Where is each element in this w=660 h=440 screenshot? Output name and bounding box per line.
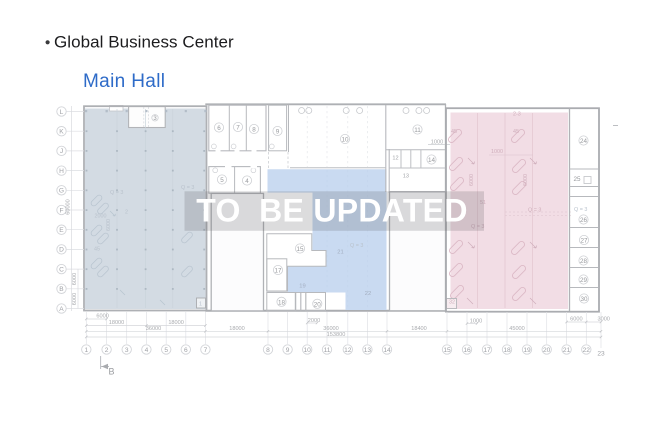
svg-text:2: 2 bbox=[105, 347, 109, 354]
svg-text:5: 5 bbox=[164, 347, 168, 354]
svg-text:4: 4 bbox=[245, 178, 249, 185]
svg-text:6000: 6000 bbox=[72, 293, 78, 305]
svg-text:7: 7 bbox=[204, 347, 208, 354]
svg-text:26: 26 bbox=[580, 217, 588, 224]
svg-text:A: A bbox=[59, 306, 64, 313]
svg-text:45: 45 bbox=[513, 129, 519, 135]
svg-text:3: 3 bbox=[125, 347, 129, 354]
svg-text:18400: 18400 bbox=[411, 326, 427, 332]
svg-text:B: B bbox=[109, 367, 115, 377]
svg-text:9: 9 bbox=[286, 347, 290, 354]
svg-text:7: 7 bbox=[236, 125, 240, 132]
svg-text:6: 6 bbox=[184, 347, 188, 354]
svg-text:45: 45 bbox=[451, 129, 457, 135]
svg-text:153800: 153800 bbox=[327, 332, 346, 338]
svg-text:6: 6 bbox=[217, 125, 221, 132]
svg-text:13: 13 bbox=[364, 347, 372, 354]
svg-text:14: 14 bbox=[428, 157, 436, 164]
svg-text:18000: 18000 bbox=[168, 320, 184, 326]
svg-text:1000: 1000 bbox=[470, 318, 482, 324]
svg-text:2-3: 2-3 bbox=[513, 112, 521, 118]
svg-text:45000: 45000 bbox=[509, 326, 525, 332]
svg-text:1000: 1000 bbox=[491, 149, 503, 155]
svg-text:19: 19 bbox=[299, 284, 305, 290]
svg-text:20: 20 bbox=[543, 347, 551, 354]
svg-text:36000: 36000 bbox=[146, 326, 162, 332]
svg-text:29: 29 bbox=[580, 277, 588, 284]
svg-text:10: 10 bbox=[304, 347, 312, 354]
svg-text:Global Business Center: Global Business Center bbox=[54, 33, 234, 52]
svg-text:15: 15 bbox=[443, 347, 451, 354]
svg-text:12: 12 bbox=[392, 156, 398, 162]
svg-text:21: 21 bbox=[337, 250, 343, 256]
svg-text:24: 24 bbox=[580, 138, 588, 145]
svg-text:J: J bbox=[60, 148, 63, 155]
svg-text:25: 25 bbox=[573, 176, 581, 183]
svg-text:8: 8 bbox=[252, 127, 256, 134]
svg-text:18: 18 bbox=[503, 347, 511, 354]
svg-text:6000: 6000 bbox=[106, 219, 112, 231]
svg-text:9: 9 bbox=[276, 129, 280, 136]
svg-text:B: B bbox=[59, 286, 64, 293]
svg-text:17: 17 bbox=[483, 347, 491, 354]
svg-text:27: 27 bbox=[580, 238, 588, 245]
svg-text:6000: 6000 bbox=[469, 174, 475, 186]
svg-text:23: 23 bbox=[597, 351, 605, 358]
svg-text:E: E bbox=[59, 227, 64, 234]
svg-text:2: 2 bbox=[125, 210, 128, 216]
svg-text:Q = 3: Q = 3 bbox=[110, 190, 123, 196]
svg-text:20: 20 bbox=[314, 301, 322, 308]
svg-text:2000: 2000 bbox=[95, 214, 107, 220]
svg-text:15: 15 bbox=[296, 246, 304, 253]
svg-text:13: 13 bbox=[403, 174, 409, 180]
svg-text:C: C bbox=[59, 266, 64, 273]
svg-text:Q = 3: Q = 3 bbox=[574, 207, 587, 213]
svg-text:19: 19 bbox=[523, 347, 531, 354]
svg-text:2000: 2000 bbox=[308, 318, 320, 324]
svg-text:6000: 6000 bbox=[72, 273, 78, 285]
svg-text:TO BE UPDATED: TO BE UPDATED bbox=[196, 193, 467, 229]
svg-text:45: 45 bbox=[94, 247, 100, 253]
svg-text:32: 32 bbox=[449, 300, 455, 306]
svg-text:30: 30 bbox=[580, 296, 588, 303]
svg-text:K: K bbox=[59, 129, 64, 136]
svg-text:6000: 6000 bbox=[523, 174, 529, 186]
svg-text:22: 22 bbox=[365, 291, 371, 297]
svg-text:H: H bbox=[59, 168, 64, 175]
svg-text:21: 21 bbox=[563, 347, 571, 354]
svg-text:16: 16 bbox=[463, 347, 471, 354]
svg-text:28: 28 bbox=[580, 258, 588, 265]
svg-text:Q = 3: Q = 3 bbox=[350, 243, 363, 249]
svg-text:1: 1 bbox=[84, 347, 88, 354]
svg-text:Main Hall: Main Hall bbox=[83, 71, 165, 92]
svg-text:18: 18 bbox=[278, 299, 286, 306]
svg-text:5: 5 bbox=[220, 177, 224, 184]
svg-text:18000: 18000 bbox=[229, 326, 245, 332]
svg-text:11: 11 bbox=[324, 347, 331, 354]
svg-text:12: 12 bbox=[344, 347, 352, 354]
svg-text:D: D bbox=[59, 247, 64, 254]
svg-text:G: G bbox=[59, 188, 64, 195]
svg-text:60000: 60000 bbox=[65, 199, 71, 215]
svg-text:Q = 3: Q = 3 bbox=[181, 185, 194, 191]
svg-text:F: F bbox=[59, 207, 63, 214]
svg-text:17: 17 bbox=[274, 268, 282, 275]
svg-text:22: 22 bbox=[583, 347, 591, 354]
svg-text:8: 8 bbox=[266, 347, 270, 354]
svg-text:4: 4 bbox=[145, 347, 149, 354]
svg-text:Q = 3: Q = 3 bbox=[528, 208, 541, 214]
svg-text:L: L bbox=[60, 109, 64, 116]
svg-text:14: 14 bbox=[383, 347, 391, 354]
svg-text:1: 1 bbox=[199, 302, 202, 308]
svg-text:3000: 3000 bbox=[597, 317, 609, 323]
svg-text:6000: 6000 bbox=[570, 317, 582, 323]
svg-text:11: 11 bbox=[414, 127, 421, 134]
svg-text:18000: 18000 bbox=[109, 320, 125, 326]
